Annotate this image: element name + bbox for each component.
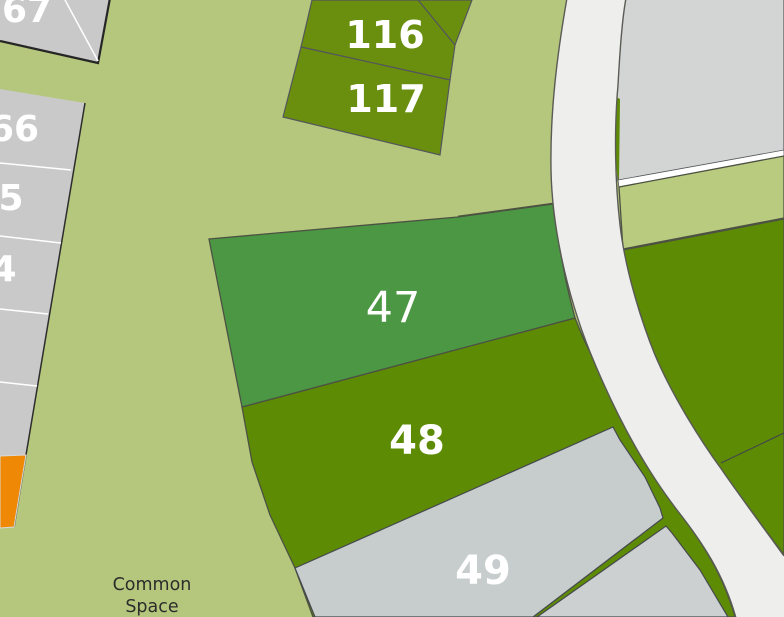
plot-67-label: 67 xyxy=(2,0,52,31)
plot-47-label: 47 xyxy=(366,283,421,333)
common-space-label-line1: Common xyxy=(113,575,192,595)
plot-116-label: 116 xyxy=(345,13,424,57)
plot-49-label: 49 xyxy=(455,548,511,594)
plot-top-right-gray[interactable] xyxy=(617,0,784,181)
site-plan-map: 67 66 5 4 116 117 47 48 49 Common Space xyxy=(0,0,784,617)
plot-48-label: 48 xyxy=(389,418,445,464)
plot-66-label: 66 xyxy=(0,109,39,150)
plot-65-label: 5 xyxy=(0,178,24,219)
common-space-label-line2: Space xyxy=(125,597,178,617)
plot-117-label: 117 xyxy=(346,77,425,121)
plot-64-label: 4 xyxy=(0,249,17,290)
